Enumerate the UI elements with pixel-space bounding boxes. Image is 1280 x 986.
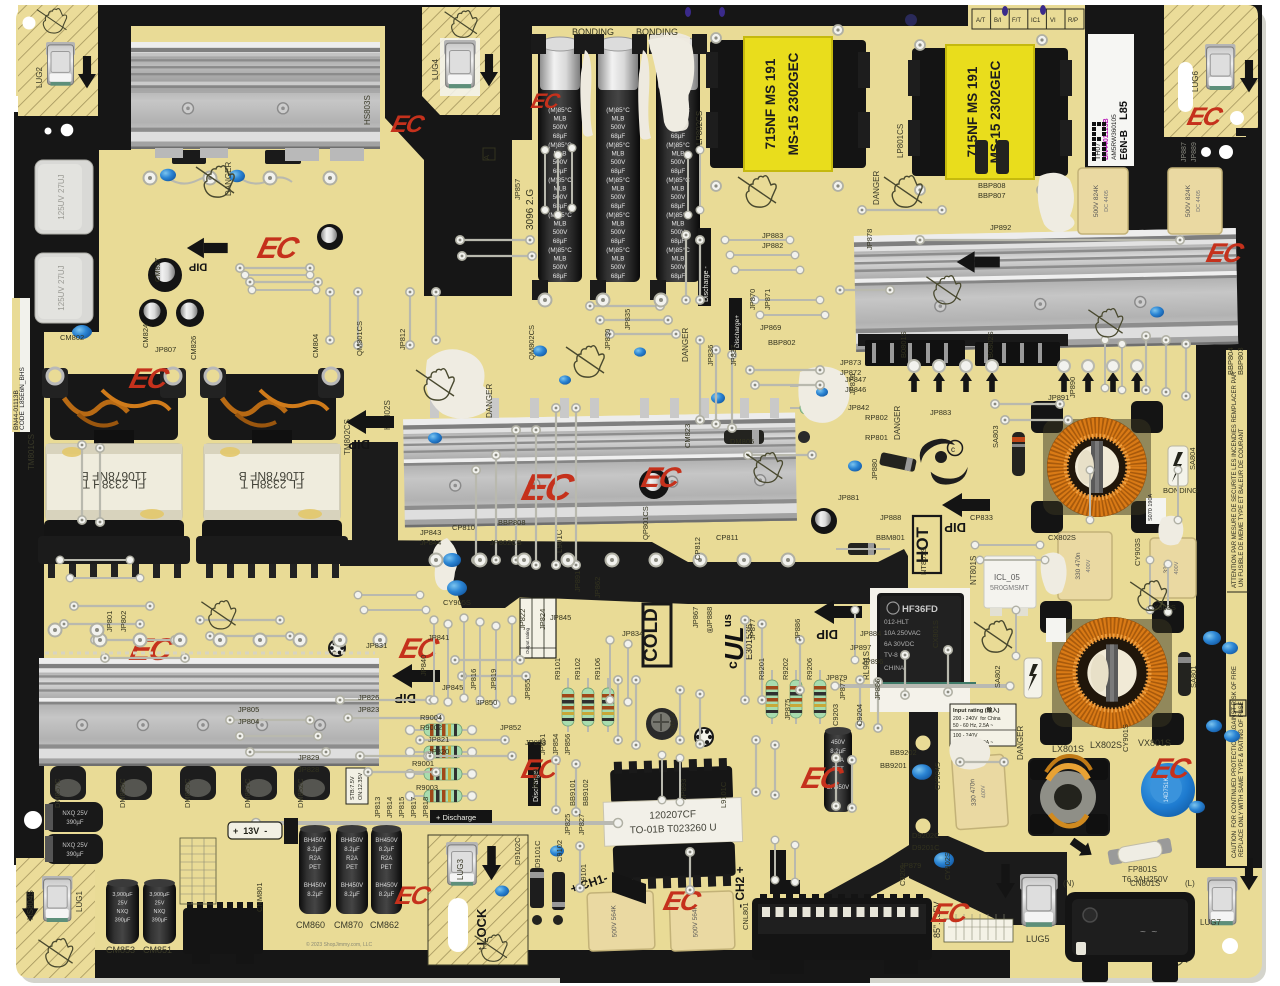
svg-text:CM862: CM862 — [370, 920, 399, 930]
svg-text:JP825: JP825 — [563, 814, 572, 835]
svg-text:- CH2 +: - CH2 + — [733, 866, 747, 908]
svg-text:500V 564K: 500V 564K — [610, 904, 618, 937]
svg-text:R2A: R2A — [309, 856, 321, 862]
svg-text:MLB: MLB — [612, 116, 625, 123]
svg-text:CP810: CP810 — [452, 523, 475, 532]
svg-text:JP845: JP845 — [442, 683, 463, 692]
svg-text:CM802: CM802 — [60, 333, 84, 342]
svg-text:JP830: JP830 — [603, 329, 612, 350]
svg-text:CM804: CM804 — [311, 334, 320, 358]
svg-text:MLB: MLB — [612, 186, 625, 193]
svg-text:CM870: CM870 — [334, 920, 363, 930]
svg-text:500V: 500V — [611, 229, 627, 236]
svg-text:JP804: JP804 — [238, 717, 259, 726]
svg-text:(M)85°C: (M)85°C — [606, 211, 630, 219]
svg-text:Input rating (輸入): Input rating (輸入) — [953, 706, 1000, 714]
svg-text:450V: 450V — [831, 740, 845, 746]
svg-text:500V: 500V — [553, 264, 569, 271]
svg-text:R2A: R2A — [346, 856, 358, 862]
svg-text:500V: 500V — [553, 124, 569, 131]
svg-text:JP886: JP886 — [793, 619, 802, 640]
svg-text:68µF: 68µF — [671, 168, 686, 175]
svg-text:JP893: JP893 — [679, 779, 688, 800]
svg-text:NXQ: NXQ — [117, 909, 130, 915]
svg-text:JP812: JP812 — [398, 329, 407, 350]
svg-text:JP843: JP843 — [420, 528, 441, 537]
svg-text:DM805: DM805 — [730, 437, 754, 446]
svg-text:JP869: JP869 — [760, 323, 781, 332]
svg-text:68µF: 68µF — [611, 203, 626, 210]
svg-text:PET: PET — [381, 865, 393, 871]
svg-text:500V: 500V — [671, 159, 687, 166]
svg-text:012-HLT: 012-HLT — [884, 619, 909, 626]
svg-text:DANGER: DANGER — [872, 171, 881, 205]
svg-text:BBP808: BBP808 — [498, 518, 526, 527]
svg-text:JP884: JP884 — [860, 629, 881, 638]
svg-text:c: c — [724, 661, 740, 669]
svg-text:FL 2338H T: FL 2338H T — [82, 477, 145, 491]
svg-text:JP826: JP826 — [358, 693, 379, 702]
svg-text:Discharge -: Discharge - — [703, 266, 710, 302]
svg-text:JP883: JP883 — [930, 408, 951, 417]
svg-text:CX802S: CX802S — [1048, 533, 1076, 542]
svg-text:BH450V: BH450V — [304, 838, 326, 844]
svg-text:JP886: JP886 — [873, 679, 882, 700]
svg-text:JP836: JP836 — [706, 345, 715, 366]
svg-text:BBP804: BBP804 — [1226, 347, 1235, 375]
svg-text:500V: 500V — [553, 194, 569, 201]
svg-text:JP883: JP883 — [762, 231, 783, 240]
svg-text:JP852: JP852 — [500, 723, 521, 732]
svg-text:BB9102: BB9102 — [581, 779, 590, 806]
svg-text:125UV 27UJ: 125UV 27UJ — [57, 265, 66, 310]
svg-text:R9202: R9202 — [781, 658, 790, 680]
svg-text:JP873: JP873 — [840, 358, 861, 367]
svg-text:R9102: R9102 — [573, 658, 582, 680]
svg-text:LX801S: LX801S — [1052, 744, 1084, 754]
svg-text:BH450V: BH450V — [375, 838, 397, 844]
svg-text:500V 824K: 500V 824K — [1093, 184, 1100, 217]
svg-text:JP821: JP821 — [428, 735, 449, 744]
svg-text:DIP: DIP — [944, 520, 966, 535]
svg-text:5R0GMSMT: 5R0GMSMT — [990, 585, 1030, 592]
svg-text:JP820: JP820 — [428, 747, 449, 756]
svg-text:6A 30VDC: 6A 30VDC — [884, 641, 915, 648]
svg-text:MLB: MLB — [612, 151, 625, 158]
svg-text:8.2µF: 8.2µF — [379, 847, 395, 853]
svg-text:BN44-01113B: BN44-01113B — [13, 390, 20, 430]
svg-text:R9001: R9001 — [412, 759, 434, 768]
svg-text:68µF: 68µF — [611, 133, 626, 140]
svg-text:STB:7.5V: STB:7.5V — [350, 776, 356, 800]
svg-text:400V: 400V — [1086, 559, 1092, 572]
svg-text:500V: 500V — [553, 229, 569, 236]
svg-text:NT801S: NT801S — [919, 547, 928, 575]
svg-text:BB9202: BB9202 — [890, 748, 917, 757]
svg-text:CY904S: CY904S — [933, 762, 942, 790]
svg-text:NXQ: NXQ — [154, 909, 167, 915]
svg-text:JP802: JP802 — [119, 611, 128, 632]
svg-text:FP801S: FP801S — [1128, 865, 1157, 874]
svg-text:JP823: JP823 — [358, 705, 379, 714]
svg-text:68µF: 68µF — [553, 203, 568, 210]
svg-text:JP875: JP875 — [783, 699, 792, 720]
svg-text:CM823: CM823 — [683, 424, 692, 448]
svg-text:BH450V: BH450V — [304, 883, 326, 889]
svg-text:R9201: R9201 — [757, 658, 766, 680]
svg-text:↑LOCK: ↑LOCK — [474, 908, 489, 952]
svg-text:JP890: JP890 — [1068, 377, 1077, 398]
svg-text:68µF: 68µF — [553, 238, 568, 245]
svg-text:CODE L85E6N_BHS: CODE L85E6N_BHS — [19, 366, 26, 430]
svg-text:~ ~: ~ ~ — [1140, 927, 1157, 938]
svg-text:JP851: JP851 — [538, 734, 547, 755]
svg-text:(M)85°C: (M)85°C — [606, 176, 630, 184]
svg-text:68µF: 68µF — [611, 273, 626, 280]
svg-text:JP819: JP819 — [489, 669, 498, 690]
svg-text:BH450V: BH450V — [375, 883, 397, 889]
svg-text:PET: PET — [309, 865, 321, 871]
svg-text:LUG1: LUG1 — [75, 891, 84, 912]
svg-text:JP897: JP897 — [850, 643, 871, 652]
svg-text:JP834: JP834 — [622, 629, 643, 638]
svg-text:500V 824K: 500V 824K — [1185, 184, 1192, 217]
svg-text:CNM801: CNM801 — [255, 882, 264, 912]
svg-text:JP828: JP828 — [298, 765, 319, 774]
svg-text:(M)85°C: (M)85°C — [666, 141, 690, 149]
svg-text:JP855: JP855 — [523, 679, 532, 700]
svg-text:(M)85°C: (M)85°C — [548, 246, 572, 254]
svg-text:CN801S: CN801S — [1130, 879, 1160, 888]
svg-text:JP891: JP891 — [1048, 393, 1069, 402]
svg-text:BB9101: BB9101 — [568, 779, 577, 806]
svg-text:HS803S: HS803S — [363, 95, 372, 125]
svg-text:JP837: JP837 — [729, 345, 738, 366]
svg-text:8.2µF: 8.2µF — [344, 892, 360, 898]
svg-text:JP878: JP878 — [865, 229, 874, 250]
svg-text:JP842: JP842 — [848, 403, 869, 412]
svg-text:DIP: DIP — [816, 627, 838, 642]
svg-text:68µF: 68µF — [553, 133, 568, 140]
svg-text:E6N-B: E6N-B — [1119, 130, 1130, 160]
svg-text:SA803: SA803 — [991, 425, 1000, 448]
svg-text:JP815: JP815 — [397, 797, 406, 818]
svg-text:500V: 500V — [553, 159, 569, 166]
svg-text:JP856: JP856 — [563, 734, 572, 755]
svg-text:DANGER: DANGER — [485, 384, 494, 418]
svg-text:PET: PET — [346, 865, 358, 871]
svg-text:CP833: CP833 — [970, 513, 993, 522]
svg-text:JP879: JP879 — [826, 673, 847, 682]
svg-text:LUG4: LUG4 — [431, 59, 440, 80]
svg-text:3,900µF: 3,900µF — [149, 892, 170, 898]
svg-text:JP888: JP888 — [705, 607, 714, 628]
svg-text:(M)85°C: (M)85°C — [548, 176, 572, 184]
svg-text:UN FUSIBLE DE MEME TYPE ET BAL: UN FUSIBLE DE MEME TYPE ET BALEUR DE COU… — [1239, 428, 1245, 587]
svg-text:500V: 500V — [611, 264, 627, 271]
svg-text:500V: 500V — [611, 159, 627, 166]
svg-text:DM857C: DM857C — [53, 778, 62, 808]
svg-text:BBM801: BBM801 — [876, 533, 905, 542]
svg-text:CM851: CM851 — [143, 945, 172, 955]
svg-text:+ Discharge: + Discharge — [436, 813, 476, 822]
svg-text:MLB: MLB — [612, 256, 625, 263]
svg-text:BONDING: BONDING — [1163, 486, 1198, 495]
svg-text:JP887: JP887 — [1181, 142, 1188, 162]
svg-text:JP801: JP801 — [105, 611, 114, 632]
svg-text:(M)85°C: (M)85°C — [606, 246, 630, 254]
svg-text:25V: 25V — [118, 901, 128, 907]
svg-text:TH07: TH07 — [1095, 143, 1102, 160]
svg-text:MLB: MLB — [554, 186, 567, 193]
svg-text:JP879: JP879 — [900, 861, 921, 870]
svg-text:68µF: 68µF — [671, 133, 686, 140]
svg-text:JP854: JP854 — [551, 734, 560, 755]
svg-text:68µF: 68µF — [671, 273, 686, 280]
svg-text:400V: 400V — [1174, 561, 1180, 574]
svg-text:MLB: MLB — [672, 256, 685, 263]
svg-text:JP877: JP877 — [748, 619, 757, 640]
svg-text:8.2µF: 8.2µF — [307, 892, 323, 898]
svg-text:JP827: JP827 — [577, 814, 586, 835]
svg-text:3,900µF: 3,900µF — [112, 892, 133, 898]
svg-text:JP814: JP814 — [385, 797, 394, 818]
svg-text:CY903S: CY903S — [1133, 538, 1142, 566]
svg-text:QM802CS: QM802CS — [527, 325, 536, 360]
svg-text:B0802S: B0802S — [986, 331, 995, 358]
svg-text:BH450V: BH450V — [341, 838, 363, 844]
svg-text:VX801S: VX801S — [1138, 738, 1171, 748]
svg-text:AM5RW360105: AM5RW360105 — [1111, 114, 1118, 160]
svg-text:C9102: C9102 — [555, 840, 564, 862]
svg-text:BONDING: BONDING — [572, 27, 614, 37]
svg-text:C9101: C9101 — [579, 864, 588, 886]
svg-text:500V: 500V — [611, 194, 627, 201]
svg-text:JP881: JP881 — [838, 493, 859, 502]
svg-text:8.2µF: 8.2µF — [379, 892, 395, 898]
svg-text:CP811: CP811 — [716, 533, 738, 542]
svg-text:IC1: IC1 — [1031, 18, 1041, 24]
svg-text:200 - 240V for China: 200 - 240V for China — [953, 716, 1001, 722]
svg-text:B/I: B/I — [994, 18, 1002, 24]
svg-text:68µF: 68µF — [671, 203, 686, 210]
svg-text:JP870: JP870 — [748, 289, 757, 310]
svg-text:CY905S: CY905S — [443, 598, 471, 607]
svg-text:BBP803: BBP803 — [1236, 347, 1245, 375]
svg-text:NXQ 25V: NXQ 25V — [62, 843, 87, 849]
svg-text:JP805: JP805 — [238, 705, 259, 714]
svg-text:SA802: SA802 — [993, 665, 1002, 688]
svg-text:68µF: 68µF — [611, 238, 626, 245]
svg-text:JP816: JP816 — [469, 669, 478, 690]
svg-text:390µF: 390µF — [66, 820, 83, 826]
svg-text:MLB: MLB — [612, 221, 625, 228]
svg-text:CAUTION FOR CONTINUED PROTECT: CAUTION FOR CONTINUED PROTECTION AGAINST… — [1232, 666, 1238, 858]
svg-text:120207CF: 120207CF — [649, 809, 696, 822]
svg-text:QP801CS: QP801CS — [641, 506, 650, 540]
svg-text:390µF: 390µF — [66, 852, 83, 858]
svg-text:(N): (N) — [1063, 879, 1074, 888]
svg-text:(M)85°C: (M)85°C — [666, 176, 690, 184]
svg-text:L9101C: L9101C — [719, 781, 728, 808]
svg-text:JP844: JP844 — [420, 538, 441, 547]
svg-text:DM851C: DM851C — [243, 778, 252, 808]
svg-text:R2A: R2A — [381, 856, 393, 862]
svg-text:us: us — [722, 614, 734, 627]
svg-text:DM855C: DM855C — [183, 778, 192, 808]
svg-text:400V: 400V — [981, 785, 988, 799]
svg-text:A/T: A/T — [976, 18, 986, 24]
svg-text:68µF: 68µF — [553, 168, 568, 175]
svg-text:LUG6: LUG6 — [1191, 71, 1200, 92]
svg-text:JP888: JP888 — [880, 513, 901, 522]
svg-text:JP857: JP857 — [513, 179, 522, 200]
svg-text:CM824: CM824 — [141, 324, 150, 348]
svg-text:DM856C: DM856C — [118, 778, 127, 808]
svg-text:CM827: CM827 — [153, 258, 162, 282]
svg-text:390µF: 390µF — [152, 918, 168, 924]
svg-text:JP889: JP889 — [1191, 142, 1198, 162]
svg-text:8.2µF: 8.2µF — [344, 847, 360, 853]
svg-text:C9014: C9014 — [668, 713, 677, 735]
svg-text:© 2023 ShopJimmy.com, LLC: © 2023 ShopJimmy.com, LLC — [306, 941, 373, 948]
svg-text:MS-15 2302GEC: MS-15 2302GEC — [786, 52, 801, 155]
svg-text:MLB: MLB — [554, 116, 567, 123]
svg-text:DC 4405: DC 4405 — [1196, 190, 1202, 212]
svg-text:LUG3: LUG3 — [456, 859, 465, 880]
svg-text:DANGER: DANGER — [224, 162, 233, 196]
svg-text:D9101C: D9101C — [533, 840, 542, 868]
svg-text:390µF: 390µF — [115, 918, 131, 924]
svg-text:SA804: SA804 — [1188, 447, 1197, 470]
svg-text:CM826: CM826 — [189, 336, 198, 360]
svg-text:COLD: COLD — [641, 608, 662, 662]
svg-text:LP801CS: LP801CS — [896, 124, 905, 158]
svg-text:MLB: MLB — [672, 221, 685, 228]
svg-text:R9004: R9004 — [420, 713, 442, 722]
svg-text:50 - 60 Hz, 2.5A ~: 50 - 60 Hz, 2.5A ~ — [953, 723, 993, 729]
svg-text:LP802CS: LP802CS — [695, 111, 704, 145]
svg-text:HS804S: HS804S — [26, 890, 35, 920]
svg-text:Output rating: Output rating — [525, 627, 530, 654]
svg-text:JP824: JP824 — [538, 609, 547, 630]
svg-text:R9206: R9206 — [805, 658, 814, 680]
svg-text:125UV 27UJ: 125UV 27UJ — [57, 174, 66, 219]
svg-text:BONDING: BONDING — [636, 27, 678, 37]
svg-text:+ 13V -: + 13V - — [233, 826, 267, 836]
svg-text:3096 2.G: 3096 2.G — [525, 189, 536, 230]
svg-text:HF36FD: HF36FD — [902, 604, 938, 615]
svg-text:DIP: DIP — [189, 260, 207, 272]
svg-text:JP850: JP850 — [476, 698, 497, 707]
svg-text:JP840: JP840 — [419, 655, 428, 676]
svg-text:DM852C: DM852C — [296, 778, 305, 808]
svg-text:LUG2: LUG2 — [35, 67, 44, 88]
svg-text:CM853: CM853 — [106, 945, 135, 955]
svg-text:JP845: JP845 — [550, 613, 571, 622]
svg-text:BBP802: BBP802 — [768, 338, 796, 347]
svg-text:R/P: R/P — [1068, 18, 1078, 24]
svg-text:CHINA: CHINA — [884, 665, 905, 672]
svg-text:330 470n: 330 470n — [1075, 552, 1082, 579]
svg-text:ON:12.35V: ON:12.35V — [358, 772, 364, 800]
svg-text:500V: 500V — [671, 264, 687, 271]
svg-text:JP829: JP829 — [298, 753, 319, 762]
svg-text:JP859: JP859 — [531, 769, 540, 790]
svg-text:R9101: R9101 — [553, 658, 562, 680]
svg-text:Discharge+: Discharge+ — [734, 315, 741, 348]
svg-text:68µF: 68µF — [611, 168, 626, 175]
svg-text:DIP: DIP — [348, 437, 370, 452]
svg-text:R9003: R9003 — [416, 783, 438, 792]
svg-text:TV-8: TV-8 — [884, 652, 898, 659]
svg-text:MLB: MLB — [554, 221, 567, 228]
svg-text:LUG7: LUG7 — [1200, 918, 1221, 927]
svg-text:CY901S: CY901S — [1121, 724, 1130, 752]
svg-text:S070 190A: S070 190A — [1148, 493, 1154, 521]
svg-text:B0801S: B0801S — [899, 331, 908, 358]
svg-text:BH450V: BH450V — [341, 883, 363, 889]
svg-text:CM860: CM860 — [296, 920, 325, 930]
svg-text:c: c — [951, 445, 955, 454]
svg-text:CX803S: CX803S — [1148, 603, 1176, 612]
svg-text:500V: 500V — [671, 194, 687, 201]
svg-text:JP822: JP822 — [518, 609, 527, 630]
svg-text:25V: 25V — [155, 901, 165, 907]
svg-text:JP880: JP880 — [870, 459, 879, 480]
svg-text:F/T: F/T — [1012, 18, 1021, 24]
svg-text:DC 4405: DC 4405 — [1104, 190, 1110, 212]
svg-text:MLB: MLB — [672, 151, 685, 158]
svg-text:10A 250VAC: 10A 250VAC — [884, 630, 921, 637]
svg-text:R9002: R9002 — [420, 723, 442, 732]
svg-text:JP882: JP882 — [762, 241, 783, 250]
svg-text:ICL_05: ICL_05 — [994, 573, 1020, 582]
svg-text:FL 2338H T: FL 2338H T — [240, 477, 303, 491]
svg-text:JP817: JP817 — [409, 797, 418, 818]
svg-text:CY902S: CY902S — [943, 852, 952, 880]
svg-text:D9201C: D9201C — [912, 843, 940, 852]
svg-text:BB9201: BB9201 — [880, 761, 907, 770]
svg-text:CNL801: CNL801 — [741, 902, 750, 930]
svg-text:TM801CS: TM801CS — [27, 434, 36, 470]
svg-text:BBP808: BBP808 — [978, 181, 1006, 190]
svg-text:RP802: RP802 — [865, 413, 888, 422]
svg-text:JP862: JP862 — [593, 577, 602, 598]
svg-text:JP807: JP807 — [155, 345, 176, 354]
svg-text:8.2µF: 8.2µF — [307, 847, 323, 853]
svg-text:QM801CS: QM801CS — [355, 321, 364, 356]
svg-text:500V: 500V — [611, 124, 627, 131]
svg-text:REPLACE ONLY WITH SAME TYPE &: REPLACE ONLY WITH SAME TYPE & RATING OF … — [1239, 701, 1245, 857]
svg-text:VI: VI — [1050, 18, 1056, 24]
svg-text:JP835: JP835 — [623, 309, 632, 330]
svg-text:C9203: C9203 — [831, 704, 840, 726]
svg-text:DANGER: DANGER — [681, 328, 690, 362]
svg-text:D9102C: D9102C — [513, 837, 522, 865]
svg-text:RP801: RP801 — [865, 433, 888, 442]
svg-text:JP841: JP841 — [428, 633, 449, 642]
svg-text:JP892: JP892 — [990, 223, 1011, 232]
svg-text:DIP: DIP — [394, 691, 416, 706]
svg-text:(M)85°C: (M)85°C — [606, 106, 630, 114]
svg-text:JP802CS: JP802CS — [490, 538, 522, 547]
svg-text:C9204: C9204 — [855, 704, 864, 726]
svg-text:DANGER: DANGER — [893, 406, 902, 440]
svg-text:CX801S: CX801S — [931, 620, 940, 648]
svg-text:JP891: JP891 — [573, 571, 582, 592]
svg-text:BBP807: BBP807 — [978, 191, 1006, 200]
